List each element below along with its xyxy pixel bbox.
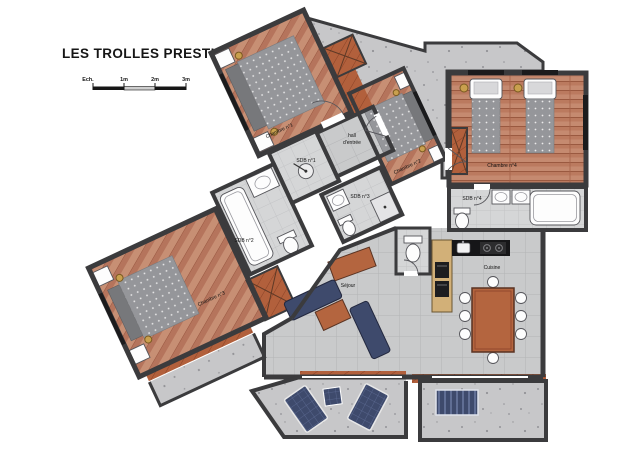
scale-tick-1m: 1m — [120, 77, 128, 83]
bed-single — [524, 79, 556, 153]
door-gap — [404, 271, 418, 276]
dining-chair — [488, 353, 499, 364]
dining-chair — [516, 293, 527, 304]
scale-segment — [93, 87, 124, 91]
door-gap — [474, 184, 490, 190]
dining-chair — [516, 311, 527, 322]
sink — [492, 190, 510, 204]
dining-chair — [488, 277, 499, 288]
dining-table — [472, 288, 514, 352]
dining-chair — [460, 329, 471, 340]
room-label-sdb4: SDB n°4 — [462, 196, 481, 202]
bedside-lamp — [514, 84, 522, 92]
window — [468, 70, 504, 75]
scale-segment — [155, 87, 186, 91]
room-label-hall-line2: d'entrée — [343, 140, 361, 146]
cooktop — [480, 242, 506, 254]
dining-chair — [516, 329, 527, 340]
bathtub — [530, 191, 580, 225]
room-label-sdb1: SDB n°1 — [296, 158, 315, 164]
floor-plan-drawing: LES TROLLES PRESTIGE N°2 Ech. 1m 2m 3m — [0, 0, 640, 452]
dining-chair — [460, 311, 471, 322]
room-label-cuisine: Cuisine — [484, 265, 501, 271]
sink — [512, 190, 530, 204]
scale-segment — [124, 87, 155, 91]
toilet — [454, 208, 470, 229]
oven — [435, 262, 449, 278]
room-label-sdb3: SDB n°3 — [350, 194, 369, 200]
room-label-chambre4: Chambre n°4 — [487, 163, 517, 169]
scale-tick-2m: 2m — [151, 77, 159, 83]
wardrobe — [451, 128, 467, 174]
kitchen-sink — [457, 243, 470, 253]
room-label-sejour: Séjour — [341, 283, 356, 289]
dining-chair — [460, 293, 471, 304]
microwave — [435, 281, 449, 297]
room-label-hall-line1: hall — [348, 133, 356, 139]
window — [522, 70, 558, 75]
scale-tick-3m: 3m — [182, 77, 190, 83]
bed-single — [470, 79, 502, 153]
bedside-lamp — [460, 84, 468, 92]
window — [583, 95, 588, 150]
floor-plan-page: LES TROLLES PRESTIGE N°2 Ech. 1m 2m 3m — [0, 0, 640, 452]
balcony-table — [323, 387, 342, 406]
daybed-mat — [436, 390, 478, 415]
scale-label: Ech. — [82, 77, 94, 83]
room-label-sdb2: SDB n°2 — [234, 238, 253, 244]
